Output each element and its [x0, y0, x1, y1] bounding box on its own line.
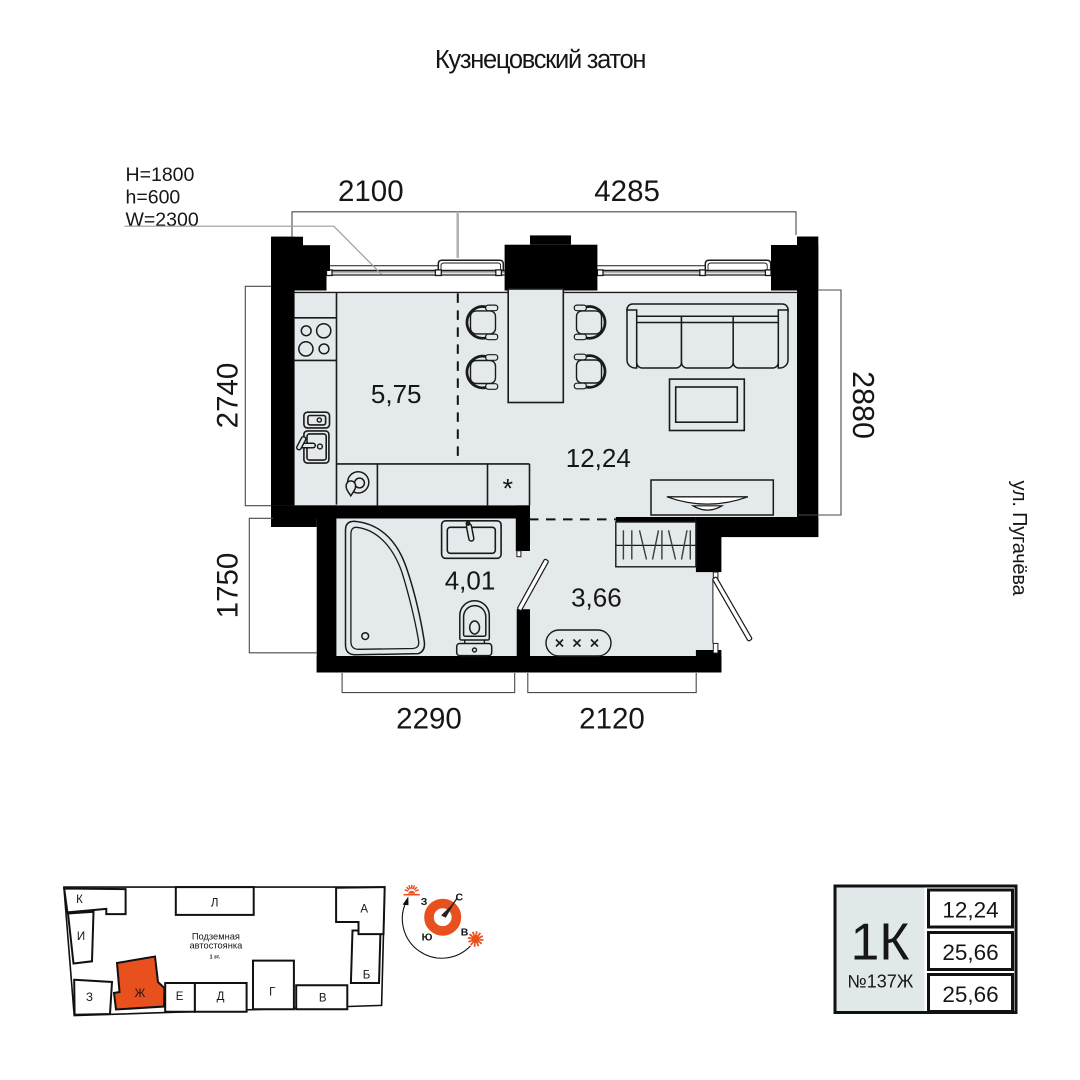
svg-text:Ю: Ю: [422, 932, 433, 944]
svg-text:А: А: [360, 904, 368, 916]
svg-text:4,01: 4,01: [445, 566, 496, 596]
svg-text:С: С: [456, 891, 464, 903]
svg-text:Е: Е: [176, 991, 184, 1003]
svg-text:*: *: [503, 474, 514, 504]
svg-text:5,75: 5,75: [371, 379, 422, 409]
svg-text:2880: 2880: [846, 371, 880, 439]
svg-text:Д: Д: [217, 991, 225, 1003]
svg-text:Г: Г: [269, 987, 276, 999]
svg-text:3,66: 3,66: [571, 583, 622, 613]
svg-text:2290: 2290: [396, 703, 462, 736]
svg-text:1750: 1750: [212, 553, 245, 619]
svg-text:1 эт.: 1 эт.: [210, 954, 221, 960]
svg-text:В: В: [319, 992, 327, 1004]
svg-text:Ж: Ж: [135, 988, 146, 1000]
svg-text:Л: Л: [211, 897, 219, 909]
svg-text:2740: 2740: [212, 363, 245, 429]
svg-text:2120: 2120: [579, 703, 645, 736]
svg-text:2100: 2100: [338, 175, 404, 208]
svg-text:Б: Б: [363, 970, 371, 982]
svg-text:ул. Пугачёва: ул. Пугачёва: [1008, 481, 1030, 597]
svg-text:И: И: [77, 931, 85, 943]
svg-text:К: К: [76, 894, 83, 906]
svg-text:автостоянка: автостоянка: [189, 941, 243, 951]
svg-text:H=1800: H=1800: [126, 164, 195, 186]
svg-text:В: В: [461, 927, 469, 939]
svg-text:12,24: 12,24: [566, 443, 631, 473]
svg-text:4285: 4285: [594, 175, 660, 208]
svg-text:25,66: 25,66: [942, 940, 998, 965]
svg-text:25,66: 25,66: [942, 982, 998, 1007]
svg-text:W=2300: W=2300: [126, 209, 199, 231]
svg-text:Кузнецовский затон: Кузнецовский затон: [435, 46, 646, 74]
svg-text:h=600: h=600: [126, 187, 181, 209]
svg-text:З: З: [421, 896, 428, 908]
svg-text:№137Ж: №137Ж: [847, 971, 913, 991]
svg-text:1К: 1К: [851, 913, 910, 971]
svg-text:12,24: 12,24: [942, 898, 998, 923]
svg-text:З: З: [86, 992, 93, 1004]
